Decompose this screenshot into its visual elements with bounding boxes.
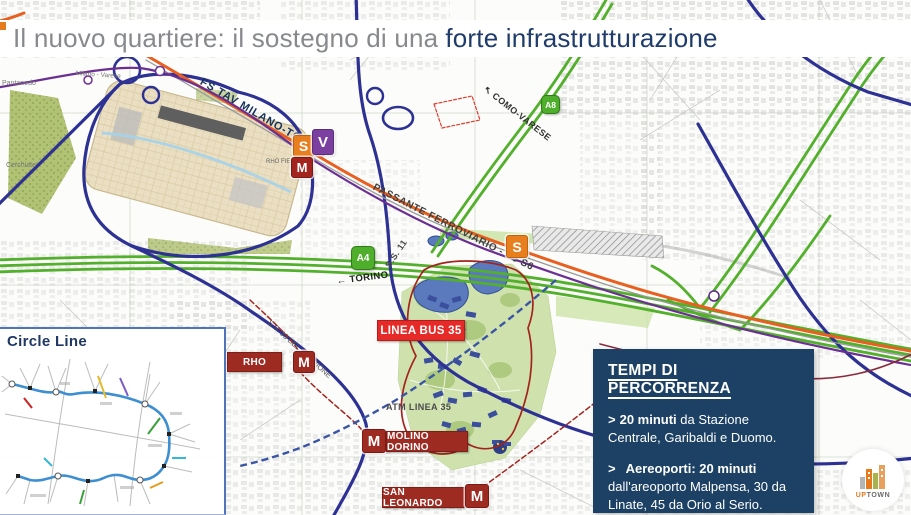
travel-times-panel: TEMPI DI PERCORRENZA >20 minuti da Stazi… [593,349,814,513]
page-title: Il nuovo quartiere: il sostegno di unafo… [13,23,718,54]
uptown-buildings-icon [858,461,888,491]
arrow-left-icon: ← [336,275,347,287]
metro-icon-molino-dorino: M [362,429,386,453]
page-title-accent: forte infrastrutturazione [445,23,717,53]
uptown-logo: UPTOWN [842,449,904,511]
label-cerchiate: Cerchiate [6,162,36,169]
bullet: > [608,412,616,427]
v-line-icon: V [312,129,334,155]
title-accent-tick [0,22,6,30]
circle-line-map [0,353,224,515]
station-label-molino-dorino: MOLINO DORINO [386,431,468,452]
station-label-san-leonardo: SAN LEONARDO [382,487,465,508]
a8-shield: A8 [541,95,560,114]
label-pantanedo: Pantanedo [2,80,36,87]
inset-title: Circle Line [7,333,87,350]
travel-time-item: >20 minuti da Stazione Centrale, Garibal… [608,411,799,447]
label-atm-linea-35: ATM LINEA 35 [386,402,451,412]
circle-line-inset: Circle Line [0,327,226,515]
metro-icon-rho: M [293,351,315,373]
title-band: Il nuovo quartiere: il sostegno di unafo… [0,20,911,57]
linea-bus-35-label: LINEA BUS 35 [377,320,465,341]
page-title-regular: Il nuovo quartiere: il sostegno di una [13,23,438,53]
suburban-rail-icon: S [293,135,314,157]
travel-time-item: >Aereoporti: 20 minuti dall'areoporto Ma… [608,460,799,514]
bullet: > [608,461,616,476]
metro-icon-san-leonardo: M [465,484,489,508]
travel-time-bold: Aereoporti: 20 minuti [626,461,757,476]
logo-up: UP [856,492,867,499]
logo-town: TOWN [867,492,891,499]
uptown-wordmark: UPTOWN [856,492,891,499]
slide: FS TAV MILANO-TORINO PASSANTE FERROVIARI… [0,0,911,515]
station-label-rho: RHO [227,352,282,372]
travel-time-text: dall'areoporto Malpensa, 30 da Linate, 4… [608,479,786,512]
metro-icon-rho-fiera: M [291,157,313,178]
suburban-rail-icon-2: S [506,235,528,258]
a4-shield: A4 [351,246,375,270]
travel-times-title: TEMPI DI PERCORRENZA [608,362,799,398]
travel-time-bold: 20 minuti [620,412,677,427]
